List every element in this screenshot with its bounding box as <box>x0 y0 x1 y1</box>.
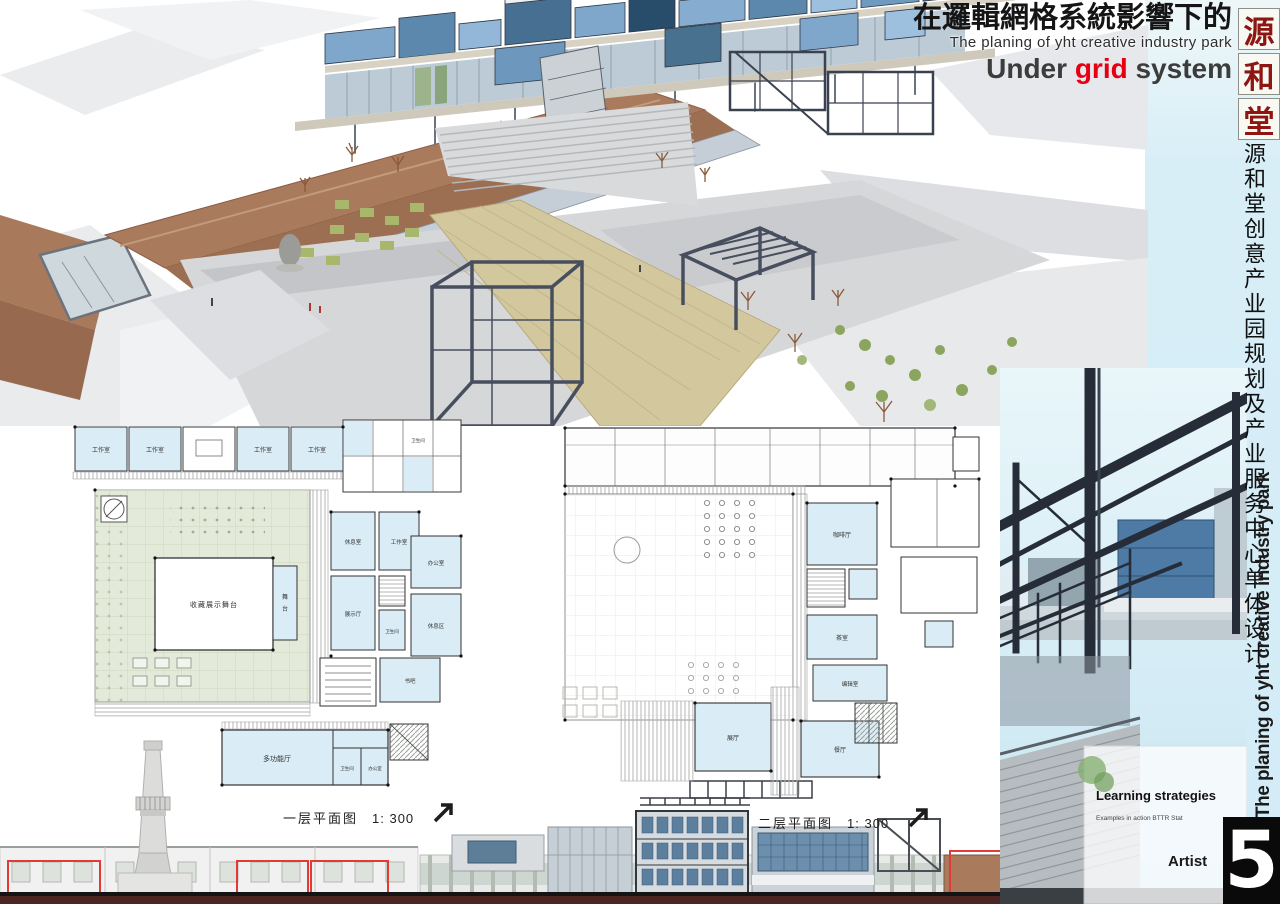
seal-char-3: 堂 <box>1238 98 1280 140</box>
room-label: 茶室 <box>836 634 848 642</box>
room-label: 休息室 <box>345 538 362 546</box>
bottom-band <box>0 896 1005 904</box>
plan2-far-wing <box>891 479 979 647</box>
plan2-caption: 二层平面图1: 300 <box>758 813 889 832</box>
tagline: Under grid system <box>870 53 1232 85</box>
room-label: 卫生间 <box>340 765 354 772</box>
plan1-stage-hall: 收藏展示舞台 舞 台 <box>155 558 297 650</box>
plan2-corridor <box>793 494 807 720</box>
page-title-cn: 在邏輯網格系統影響下的 <box>870 2 1232 34</box>
ground-line <box>0 892 1005 896</box>
presentation-board: 在邏輯網格系統影響下的 The planing of yht creative … <box>0 0 1280 904</box>
elev-sheds <box>0 847 418 893</box>
plan1-caption: 一层平面图1: 300 <box>283 808 414 827</box>
seal-logo: 源 和 堂 <box>1238 8 1280 143</box>
seal-char-1: 源 <box>1238 8 1280 50</box>
photo-subtext: Examples in action BTTR Stat <box>1096 815 1183 822</box>
page-subtitle-en: The planing of yht creative industry par… <box>870 34 1232 51</box>
plan1-label: 一层平面图 <box>283 811 358 826</box>
room-label: 休息区 <box>428 622 445 630</box>
room-label: 工作室 <box>146 446 164 454</box>
room-label: 餐厅 <box>834 746 846 754</box>
plan1-top-studios: 工作室 工作室 工作室 工作室 <box>73 427 359 479</box>
room-label: 收藏展示舞台 <box>190 600 238 609</box>
plan1-entry-block: 卫生间 <box>343 420 461 492</box>
room-label: 工作室 <box>254 446 272 454</box>
room-label: 多功能厅 <box>263 754 291 763</box>
plan2-label: 二层平面图 <box>758 816 833 831</box>
room-label: 卫生间 <box>385 628 399 635</box>
north-arrow-plan1 <box>430 798 458 826</box>
room-label: 展厅 <box>727 735 739 742</box>
room-label: 舞 <box>282 593 288 601</box>
plan2-east-rooms: 咖啡厅 茶室 编辑室 <box>807 503 887 701</box>
room-label: 办公室 <box>368 765 382 772</box>
plan2-scale: 1: 300 <box>847 816 889 831</box>
vertical-title-en: The planing of yht creative industry par… <box>1252 466 1276 818</box>
plan1-east-wing: 休息室 工作室 展示厅 卫生间 办公室 休息区 <box>331 512 461 656</box>
room-label: 台 <box>282 605 288 613</box>
room-label: 卫生间 <box>411 437 425 444</box>
page-number: 5 <box>1223 817 1280 904</box>
tagline-accent: grid <box>1075 53 1128 84</box>
plan1-scale: 1: 300 <box>372 811 414 826</box>
floor-plan-level1: 工作室 工作室 工作室 工作室 卫生间 收 <box>55 418 465 803</box>
title-block: 在邏輯網格系統影響下的 The planing of yht creative … <box>870 2 1232 85</box>
floor-plan-level2: 咖啡厅 茶室 编辑室 展厅 餐厅 <box>555 415 985 810</box>
photo-glass-panel: Learning strategies Examples in action B… <box>1078 746 1247 904</box>
photo-heading: Learning strategies <box>1096 788 1216 803</box>
room-label: 书吧 <box>404 677 416 685</box>
plan2-courtyard <box>565 494 793 720</box>
north-arrow-plan2 <box>905 803 933 831</box>
room-label: 工作室 <box>92 446 110 454</box>
plan1-south-block: 多功能厅 卫生间 办公室 <box>222 722 428 785</box>
room-label: 编辑室 <box>842 680 859 688</box>
room-label: 展示厅 <box>345 611 362 618</box>
steel-frame-photo: Learning strategies Examples in action B… <box>1000 368 1247 904</box>
room-label: 工作室 <box>391 538 408 546</box>
room-label: 咖啡厅 <box>833 531 851 539</box>
seal-char-2: 和 <box>1238 53 1280 95</box>
photo-caption: Artist <box>1168 853 1207 870</box>
room-label: 工作室 <box>308 446 326 454</box>
room-label: 办公室 <box>428 559 445 567</box>
